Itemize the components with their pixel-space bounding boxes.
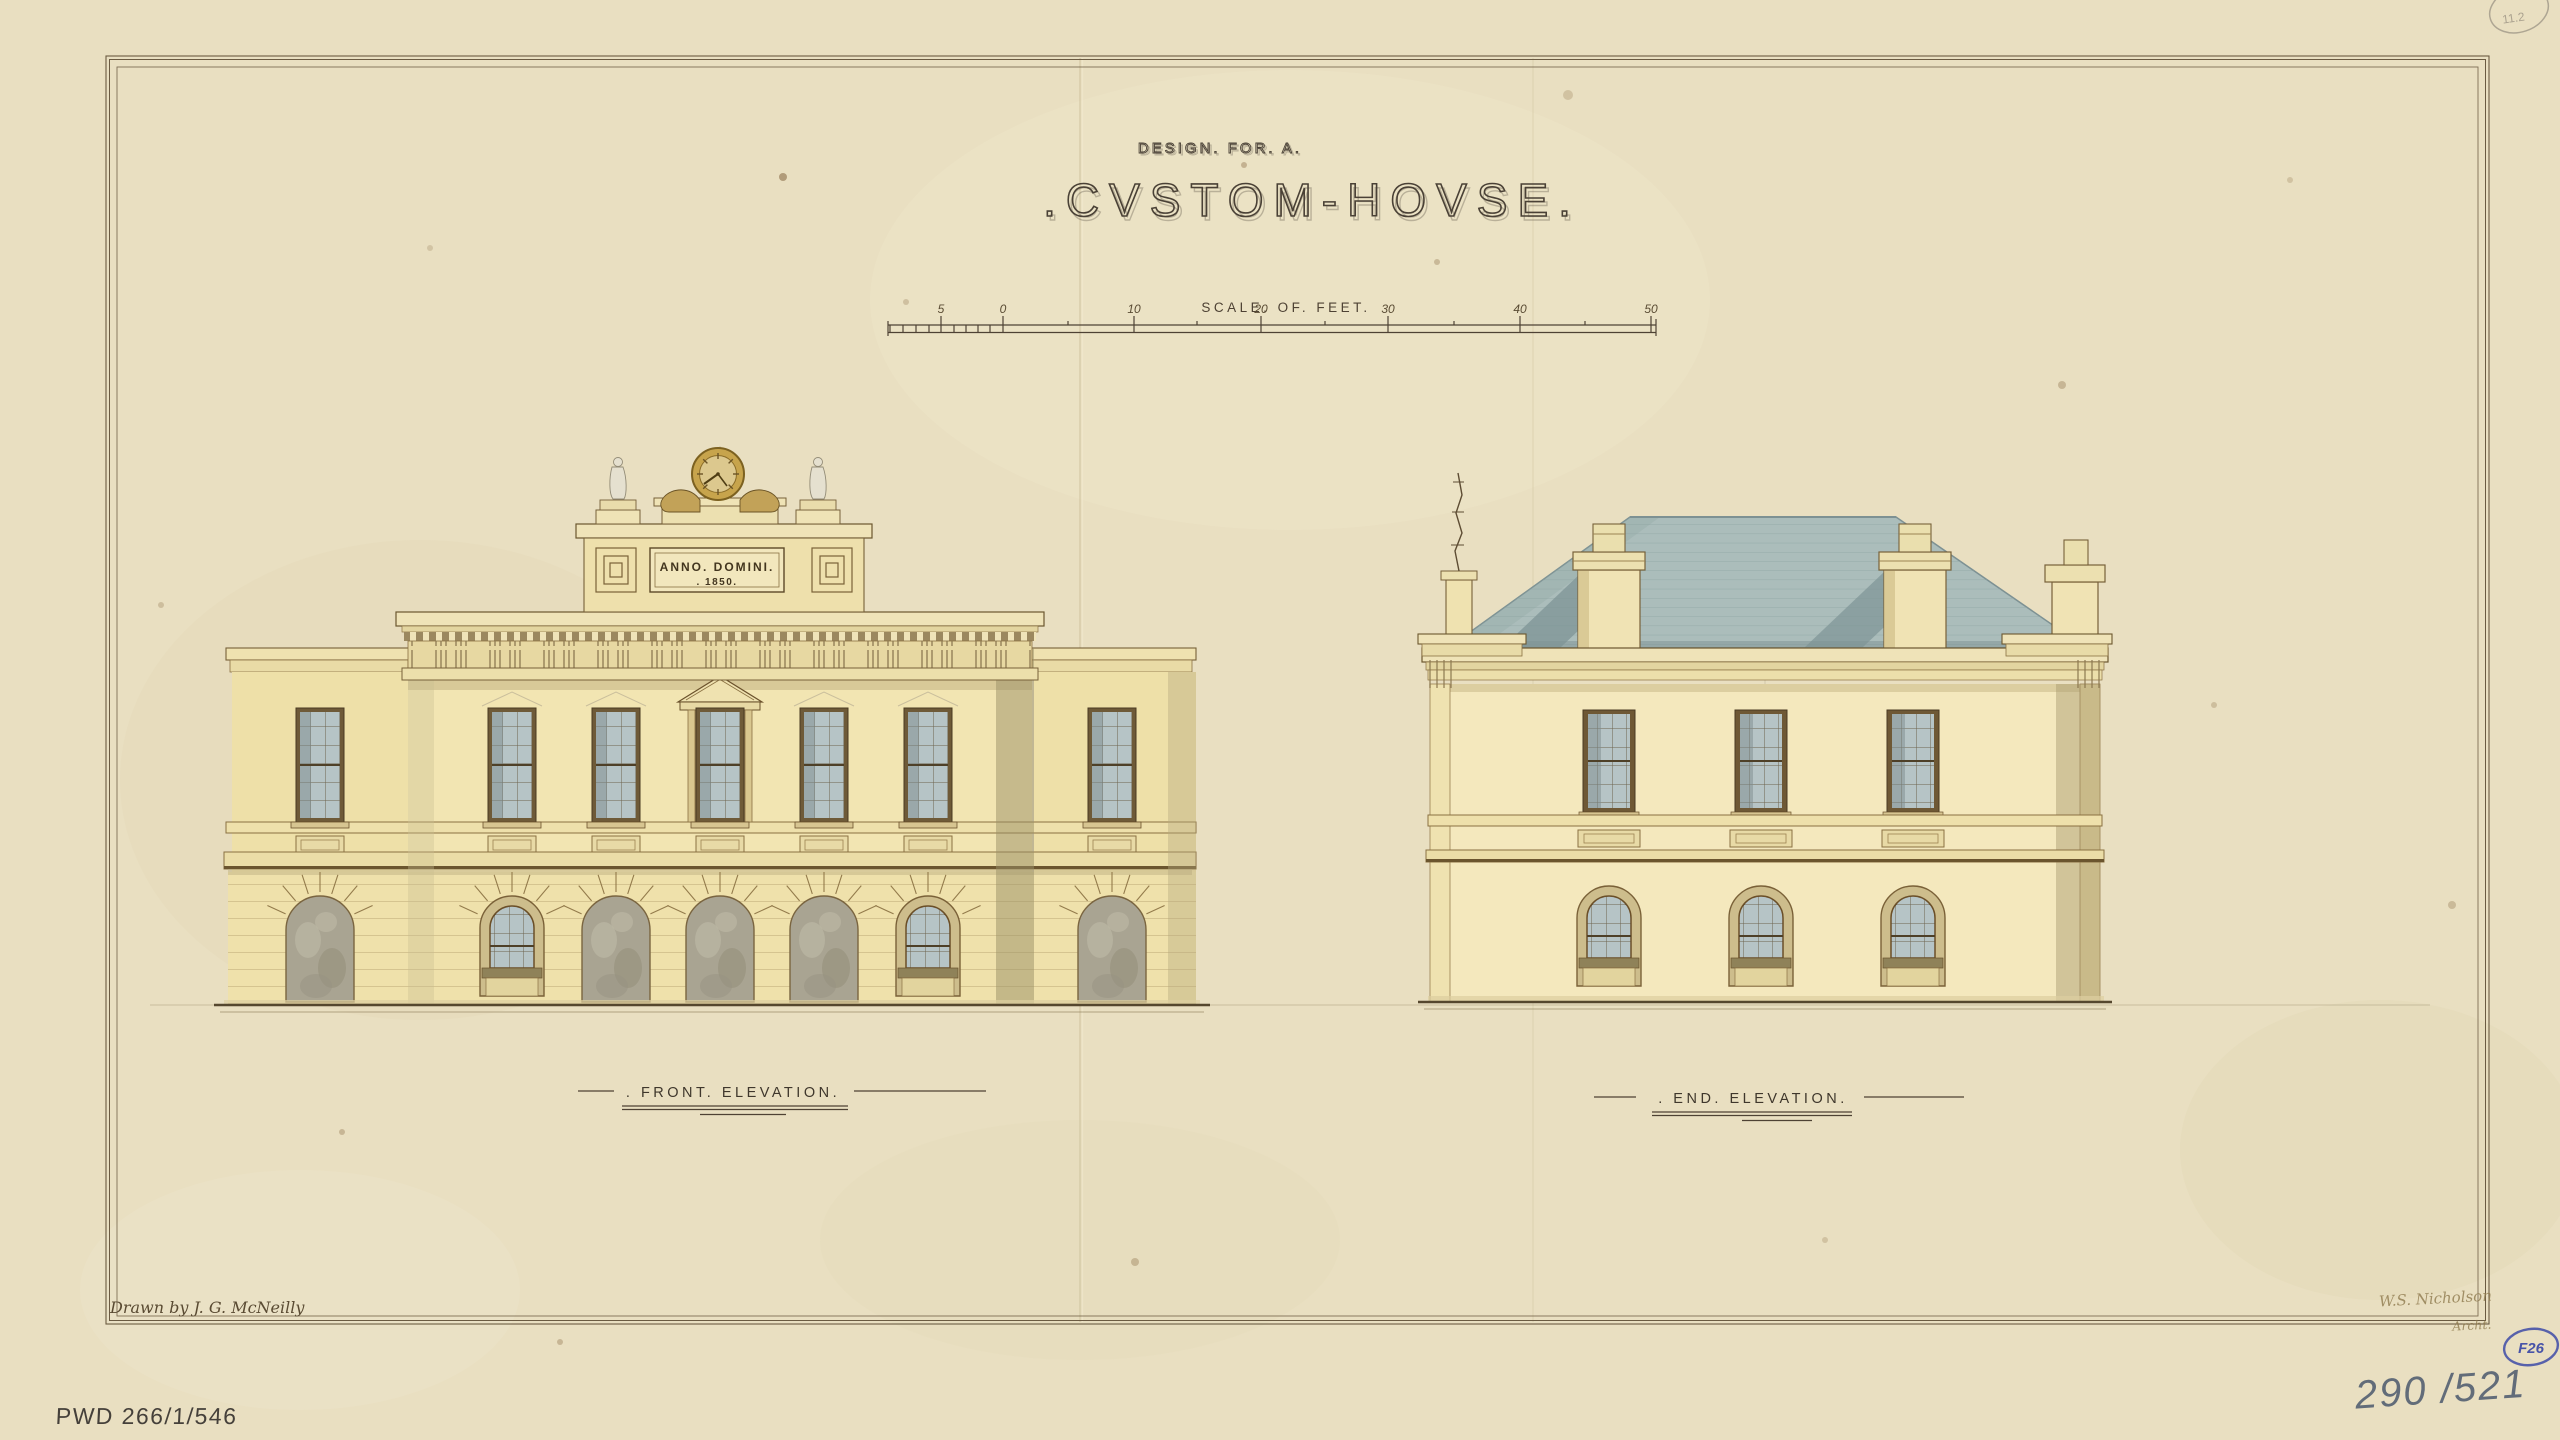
pedimented-window — [678, 676, 762, 828]
scale-tick-label: 40 — [1513, 302, 1527, 316]
window — [1731, 710, 1791, 817]
panel — [696, 836, 744, 854]
panel — [1088, 836, 1136, 854]
archway — [686, 896, 754, 1002]
ground-window — [1577, 886, 1641, 986]
anno-domini-plaque: ANNO. DOMINI. . 1850. — [650, 548, 784, 592]
window — [291, 708, 349, 828]
corner-pilaster-left — [1430, 684, 1450, 1002]
window — [483, 708, 541, 828]
end-cornice — [1422, 648, 2108, 680]
archive-reference: PWD 266/1/546 — [55, 1403, 238, 1429]
drawing-sheet: DESIGN. FOR. A. DESIGN. FOR. A. .CVSTOM-… — [0, 0, 2560, 1440]
panel — [904, 836, 952, 854]
title-line2: .CVSTOM-HOVSE. — [1043, 174, 1581, 226]
end-ground-windows — [1577, 886, 1945, 986]
end-upper-windows — [1579, 710, 1943, 817]
panel — [488, 836, 536, 854]
clock-face — [692, 448, 744, 500]
archive-ref-text: PWD 266/1/546 — [55, 1403, 238, 1429]
end-label-text: . END. ELEVATION. — [1658, 1091, 1848, 1107]
panel — [592, 836, 640, 854]
drawn-by-note: Drawn by J. G. McNeilly — [109, 1298, 305, 1317]
ground-window — [896, 896, 960, 996]
scale-tick-label: 50 — [1644, 302, 1658, 316]
window — [691, 708, 749, 828]
window — [1883, 710, 1943, 817]
window — [1579, 710, 1639, 817]
window — [795, 708, 853, 828]
string-course — [1428, 815, 2102, 826]
ground-window — [1881, 886, 1945, 986]
archway — [1078, 896, 1146, 1002]
window — [587, 708, 645, 828]
scale-tick-label: 5 — [938, 302, 945, 316]
scale-tick-label: 20 — [1253, 302, 1268, 316]
archway — [582, 896, 650, 1002]
plaque-year: . 1850. — [696, 577, 737, 588]
end-panel-row — [1578, 830, 1944, 847]
scale-tick-label: 10 — [1127, 302, 1141, 316]
plaque-text: ANNO. DOMINI. — [660, 560, 775, 574]
stamp-text: F26 — [2518, 1340, 2545, 1357]
scale-tick-label: 0 — [1000, 302, 1007, 316]
scale-bar-label: SCALE. OF. FEET. — [1201, 300, 1370, 315]
end-floor-band — [1426, 850, 2104, 862]
front-entablature — [396, 612, 1044, 680]
attic-block: ANNO. DOMINI. . 1850. — [576, 524, 872, 612]
ground-window — [480, 896, 544, 996]
custom-house-drawing: DESIGN. FOR. A. DESIGN. FOR. A. .CVSTOM-… — [0, 0, 2560, 1440]
archway — [790, 896, 858, 1002]
window — [899, 708, 957, 828]
front-label-text: . FRONT. ELEVATION. — [626, 1085, 840, 1101]
title-line1: DESIGN. FOR. A. — [1138, 140, 1302, 157]
signature-title: Archt. — [2451, 1317, 2492, 1334]
floor-band — [224, 852, 1196, 875]
ground-window — [1729, 886, 1793, 986]
scale-tick-label: 30 — [1381, 302, 1395, 316]
window — [1083, 708, 1141, 828]
archway — [286, 896, 354, 1002]
panel — [800, 836, 848, 854]
corner-shadow — [2056, 684, 2100, 1002]
panel — [296, 836, 344, 854]
